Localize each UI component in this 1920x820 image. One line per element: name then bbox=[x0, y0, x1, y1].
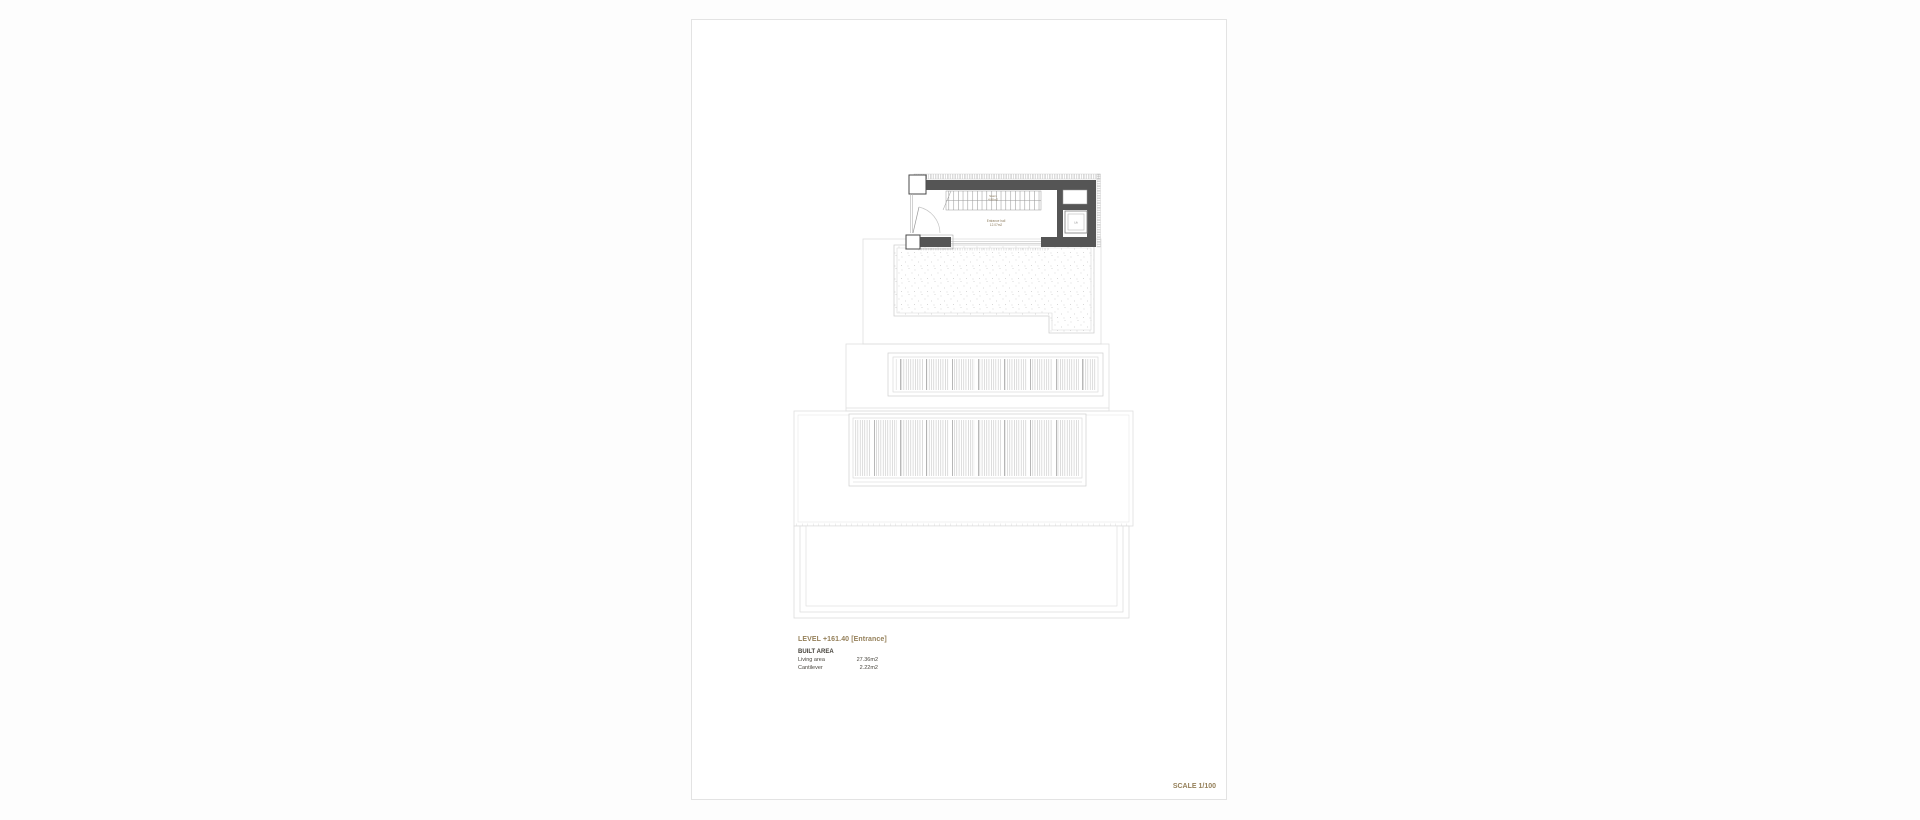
stairs-area-label: 4.88m2 bbox=[988, 198, 998, 202]
insulation-strip-top bbox=[914, 174, 1100, 179]
floor-plan-drawing: Lift Stairs 4.88m2 Entrance hall 12.07m2 bbox=[692, 20, 1228, 801]
area-row-value: 2.22m2 bbox=[860, 665, 878, 673]
wall-cap-top-left bbox=[909, 175, 926, 194]
table-row: Cantilever 2.22m2 bbox=[798, 665, 878, 673]
entry-door-arc bbox=[913, 207, 940, 233]
louvre-band-lower bbox=[849, 414, 1086, 486]
lift-shaft: Lift bbox=[1065, 211, 1087, 233]
screenshot-canvas: Lift Stairs 4.88m2 Entrance hall 12.07m2… bbox=[0, 0, 1920, 820]
pool-outline bbox=[794, 524, 1129, 619]
title-block: LEVEL +161.40 [Entrance] BUILT AREA Livi… bbox=[798, 636, 888, 672]
wall-top bbox=[920, 180, 1096, 190]
louvre-band-upper bbox=[888, 353, 1103, 396]
wall-bottom-left bbox=[919, 237, 951, 247]
wall-room-partition bbox=[1058, 204, 1087, 210]
wall-bottom-right bbox=[1041, 237, 1087, 247]
scale-label: SCALE 1/100 bbox=[1173, 783, 1216, 790]
area-row-label: Living area bbox=[798, 657, 825, 665]
wall-cap-bottom-left bbox=[906, 235, 920, 249]
sheet-page: Lift Stairs 4.88m2 Entrance hall 12.07m2… bbox=[691, 19, 1227, 800]
level-title: LEVEL +161.40 [Entrance] bbox=[798, 636, 888, 643]
wall-lift-partition bbox=[1057, 190, 1063, 237]
built-area-heading: BUILT AREA bbox=[798, 649, 888, 655]
terrace bbox=[894, 245, 1094, 333]
hall-area-label: 12.07m2 bbox=[990, 223, 1003, 227]
insulation-strip-right bbox=[1097, 174, 1101, 247]
area-row-value: 27.36m2 bbox=[857, 657, 878, 665]
pool-edge-ticks bbox=[794, 524, 1129, 527]
lift-label: Lift bbox=[1074, 222, 1078, 225]
table-row: Living area 27.36m2 bbox=[798, 657, 878, 665]
storage-room bbox=[1063, 190, 1087, 204]
wall-right bbox=[1087, 180, 1096, 247]
area-row-label: Cantilever bbox=[798, 665, 823, 673]
built-area-table: Living area 27.36m2 Cantilever 2.22m2 bbox=[798, 657, 888, 672]
